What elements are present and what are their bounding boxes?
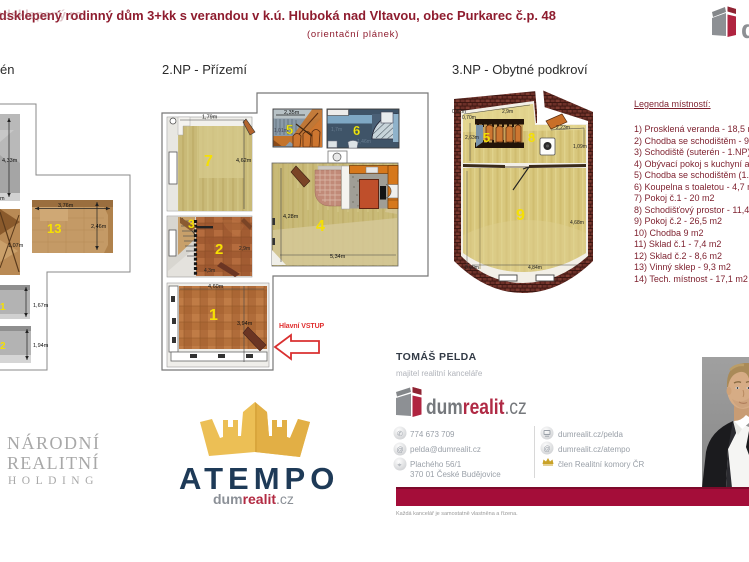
svg-text:1,94m: 1,94m [33, 343, 49, 349]
svg-text:5,34m: 5,34m [330, 254, 346, 260]
svg-text:0,70m: 0,70m [462, 115, 476, 121]
svg-text:3,76m: 3,76m [58, 203, 74, 209]
svg-text:2: 2 [0, 341, 6, 352]
svg-text:4,60m: 4,60m [208, 284, 224, 290]
svg-text:4,28m: 4,28m [283, 214, 299, 220]
svg-text:6: 6 [353, 123, 360, 138]
svg-text:1,07m: 1,07m [8, 243, 24, 249]
svg-text:4,62m: 4,62m [236, 158, 252, 164]
svg-text:1,79m: 1,79m [202, 115, 218, 121]
svg-text:2: 2 [215, 241, 223, 258]
svg-text:1,67m: 1,67m [33, 303, 49, 309]
svg-text:⌖: ⌖ [398, 462, 402, 469]
svg-text:d: d [741, 14, 749, 42]
svg-text:4,33m: 4,33m [2, 158, 18, 164]
svg-text:8: 8 [528, 130, 535, 145]
svg-text:2,9m: 2,9m [239, 246, 250, 252]
svg-text:13: 13 [47, 221, 61, 236]
svg-text:4,84m: 4,84m [528, 265, 542, 271]
svg-text:@: @ [544, 446, 551, 453]
svg-text:4: 4 [316, 218, 325, 235]
svg-text:7: 7 [204, 153, 213, 170]
svg-text:4,3m: 4,3m [204, 268, 215, 274]
svg-text:1: 1 [0, 302, 6, 313]
svg-text:5: 5 [286, 122, 293, 137]
svg-text:2,63m: 2,63m [465, 135, 479, 141]
svg-text:✆: ✆ [397, 430, 403, 438]
svg-text:1: 1 [209, 307, 218, 324]
svg-text:2,23m: 2,23m [556, 125, 570, 131]
svg-text:2,46m: 2,46m [91, 224, 107, 230]
svg-text:9: 9 [516, 207, 525, 224]
svg-text:@: @ [397, 447, 404, 454]
svg-text:m: m [0, 196, 5, 202]
svg-text:2,9m: 2,9m [502, 109, 513, 115]
svg-text:5: 5 [483, 130, 490, 145]
svg-text:1,09m: 1,09m [573, 144, 587, 150]
svg-text:3: 3 [188, 217, 195, 231]
svg-text:1,46m: 1,46m [357, 139, 371, 145]
svg-text:1,7m: 1,7m [331, 127, 342, 133]
svg-text:4,68m: 4,68m [570, 220, 584, 226]
svg-text:0,60m: 0,60m [465, 265, 479, 271]
svg-text:2,35m: 2,35m [284, 110, 300, 116]
svg-text:3,94m: 3,94m [237, 321, 253, 327]
